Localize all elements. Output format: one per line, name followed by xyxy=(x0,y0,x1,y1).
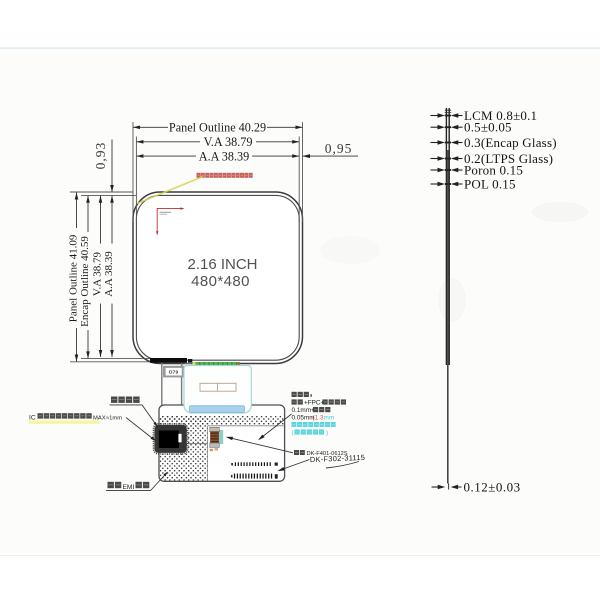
svg-text:0.12±0.03: 0.12±0.03 xyxy=(464,479,521,494)
svg-text:Panel Outline 41.09: Panel Outline 41.09 xyxy=(68,234,80,322)
svg-text:A.A 38.39: A.A 38.39 xyxy=(103,251,115,297)
svg-text:0.1mm+: 0.1mm+ xyxy=(292,407,316,414)
svg-text:0.3(Encap Glass): 0.3(Encap Glass) xyxy=(464,135,557,150)
svg-text:D79: D79 xyxy=(169,369,179,375)
svg-text:2.16 INCH: 2.16 INCH xyxy=(187,256,257,273)
svg-text:+FPC+: +FPC+ xyxy=(304,399,325,406)
svg-text:EMI: EMI xyxy=(123,484,135,491)
svg-text:V.A 38.79: V.A 38.79 xyxy=(92,251,104,296)
svg-text:Poron 0.15: Poron 0.15 xyxy=(464,162,523,177)
svg-text:IC: IC xyxy=(29,414,36,421)
svg-text:0.05mm: 0.05mm xyxy=(292,414,315,421)
svg-text:0.5±0.05: 0.5±0.05 xyxy=(464,120,512,135)
svg-text:mm: mm xyxy=(324,414,335,421)
svg-text:Encap Outline 40.59: Encap Outline 40.59 xyxy=(79,236,91,327)
svg-text:0,95: 0,95 xyxy=(325,141,353,156)
svg-text:V.A 38.79: V.A 38.79 xyxy=(204,135,253,149)
svg-text:POL 0.15: POL 0.15 xyxy=(464,176,516,191)
svg-text:Panel Outline 40.29: Panel Outline 40.29 xyxy=(169,121,266,135)
svg-text:(1.3: (1.3 xyxy=(313,414,324,421)
svg-text:480*480: 480*480 xyxy=(191,273,250,290)
svg-text:0,93: 0,93 xyxy=(93,142,108,170)
svg-text:): ) xyxy=(326,429,328,436)
svg-text:MAX: MAX xyxy=(93,415,106,421)
svg-text:A.A 38.39: A.A 38.39 xyxy=(199,150,249,164)
svg-text:≈1mm: ≈1mm xyxy=(106,415,122,421)
